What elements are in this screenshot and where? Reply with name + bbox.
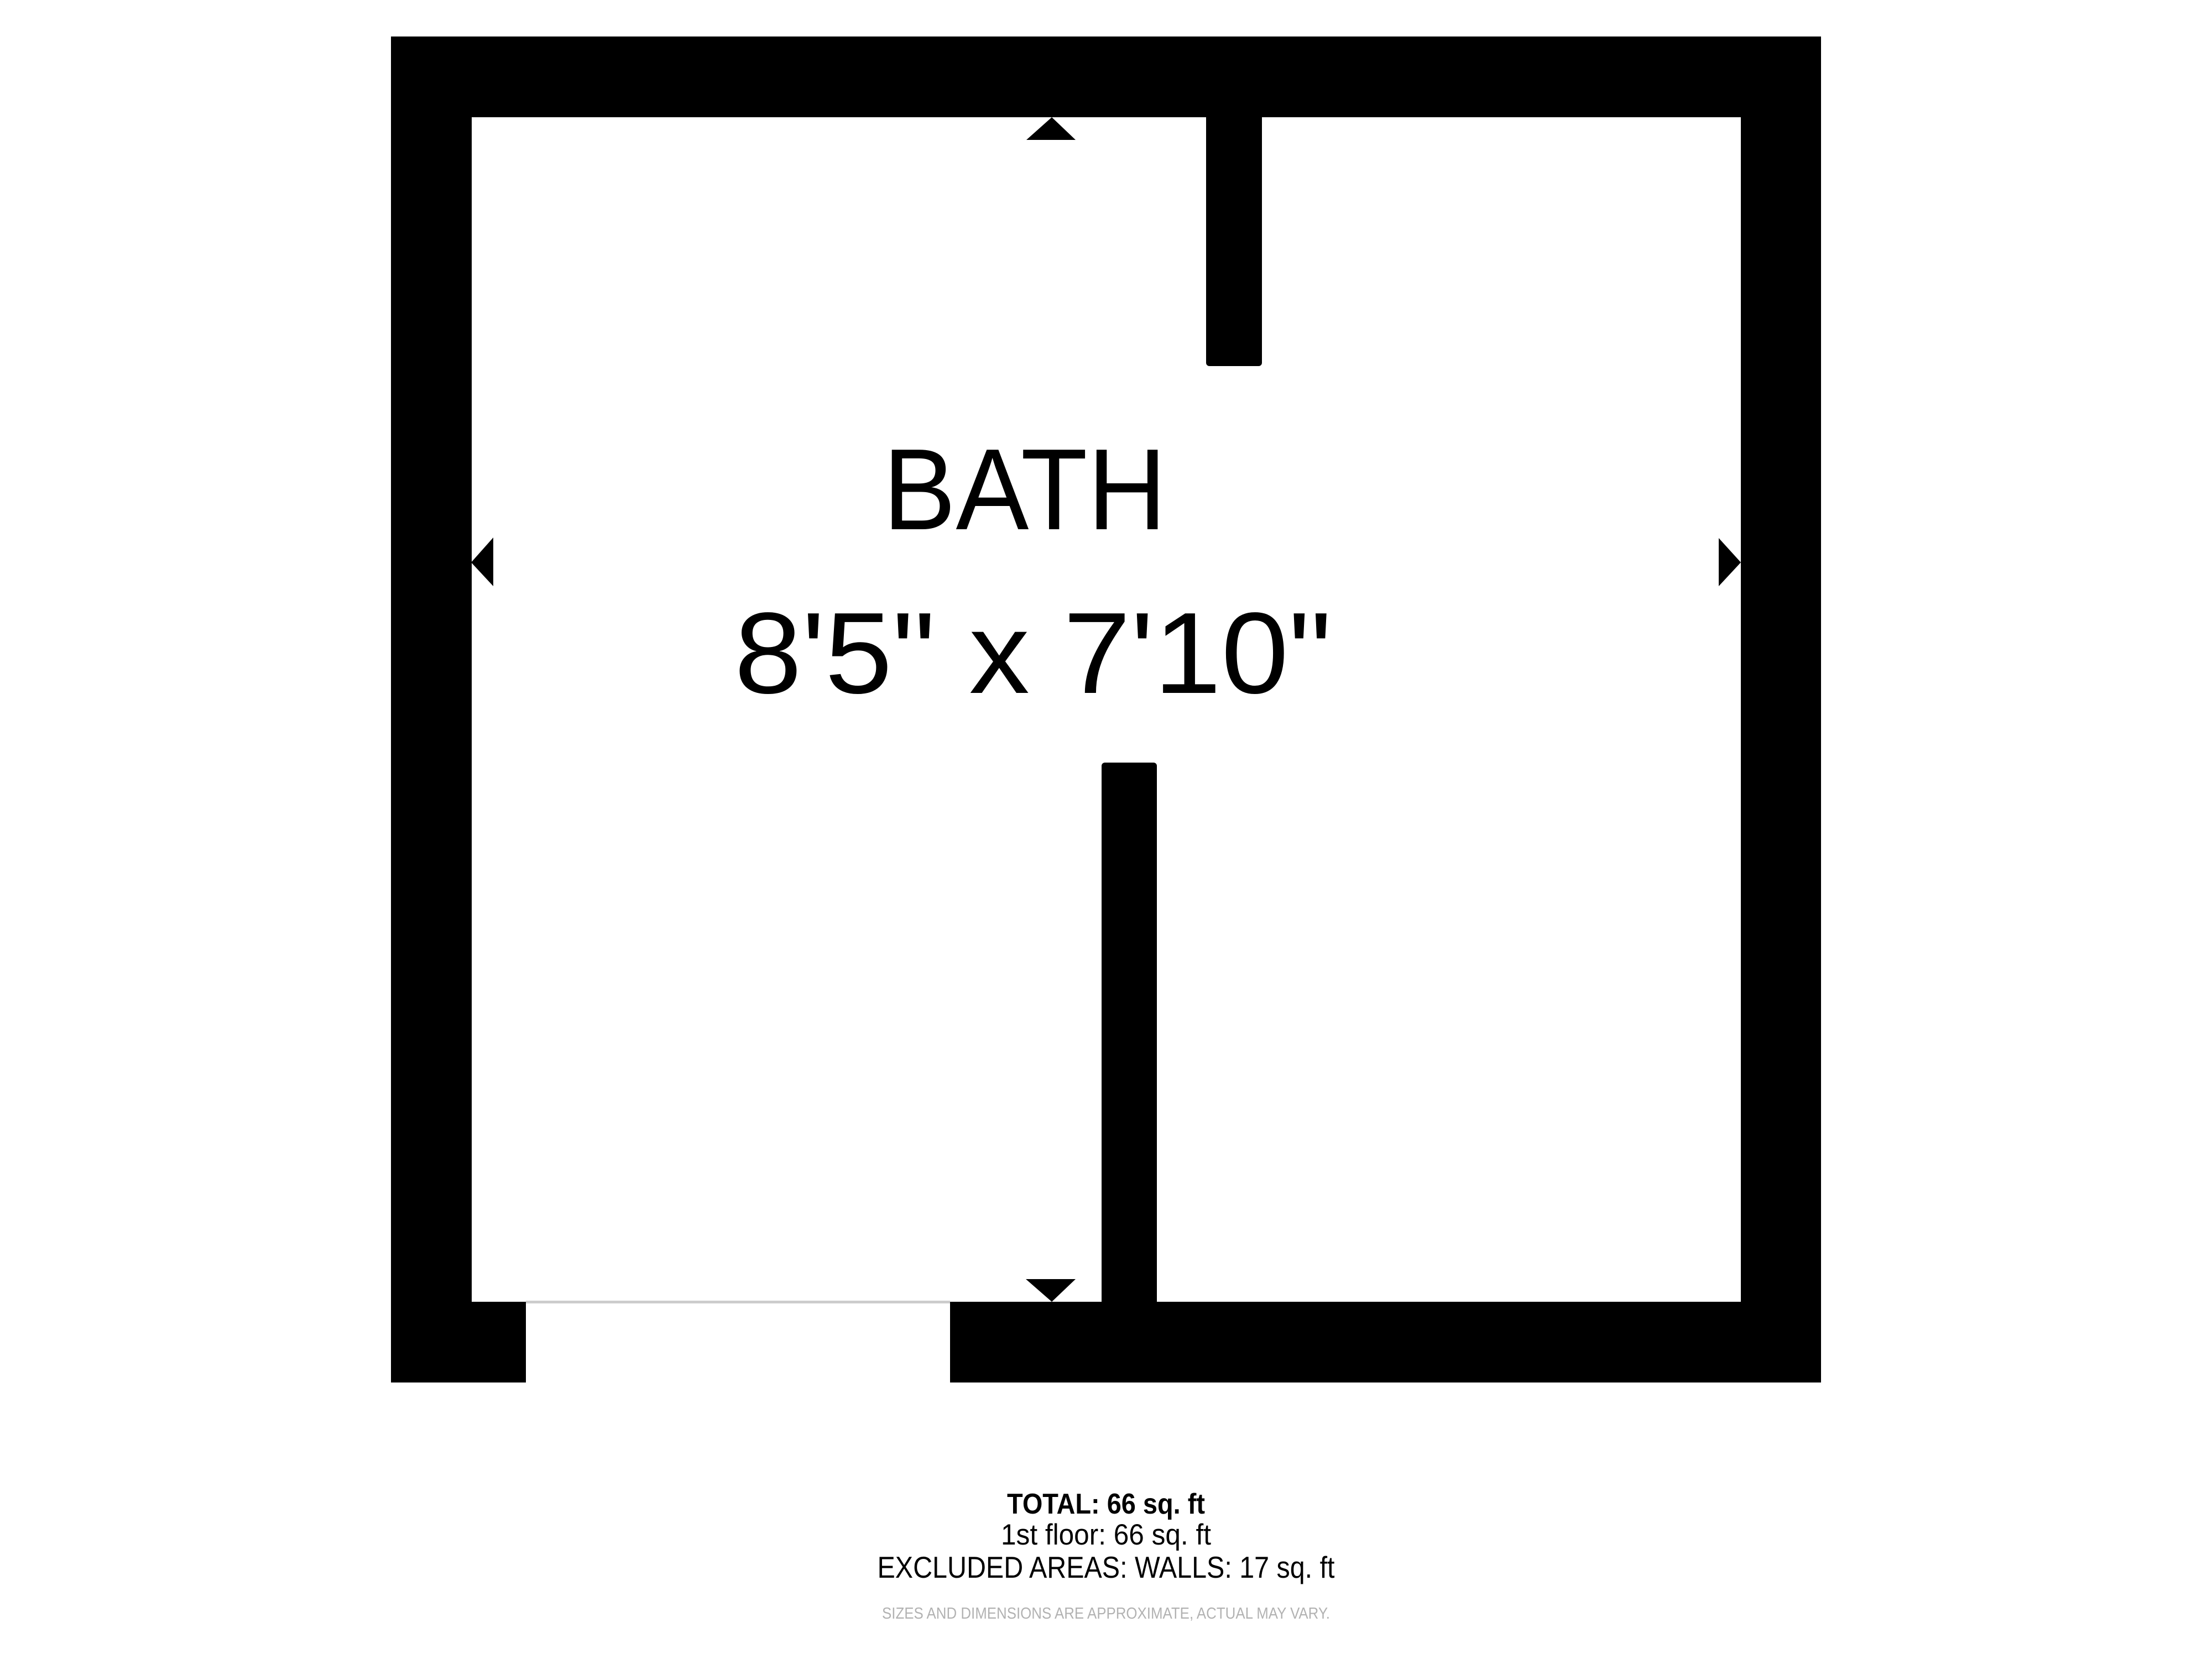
room-name-label: BATH (883, 425, 1167, 554)
disclaimer-text: SIZES AND DIMENSIONS ARE APPROXIMATE, AC… (882, 1605, 1330, 1623)
interior-wall-top (1206, 36, 1262, 366)
total-area-text: TOTAL: 66 sq. ft (1007, 1488, 1205, 1520)
door-opening-line (526, 1301, 950, 1303)
wall-left (391, 36, 472, 1383)
wall-bottom-left-segment (391, 1302, 526, 1383)
excluded-areas-text: EXCLUDED AREAS: WALLS: 17 sq. ft (878, 1550, 1335, 1584)
wall-top (391, 36, 1821, 117)
first-floor-area-text: 1st floor: 66 sq. ft (1001, 1519, 1211, 1551)
wall-bottom-right-segment (950, 1302, 1821, 1383)
room-dimensions-label: 8'5" x 7'10" (734, 589, 1332, 718)
floor-plan-canvas: BATH 8'5" x 7'10" TOTAL: 66 sq. ft 1st f… (0, 0, 2212, 1659)
interior-wall-bottom (1102, 763, 1157, 1383)
wall-right (1741, 36, 1821, 1383)
